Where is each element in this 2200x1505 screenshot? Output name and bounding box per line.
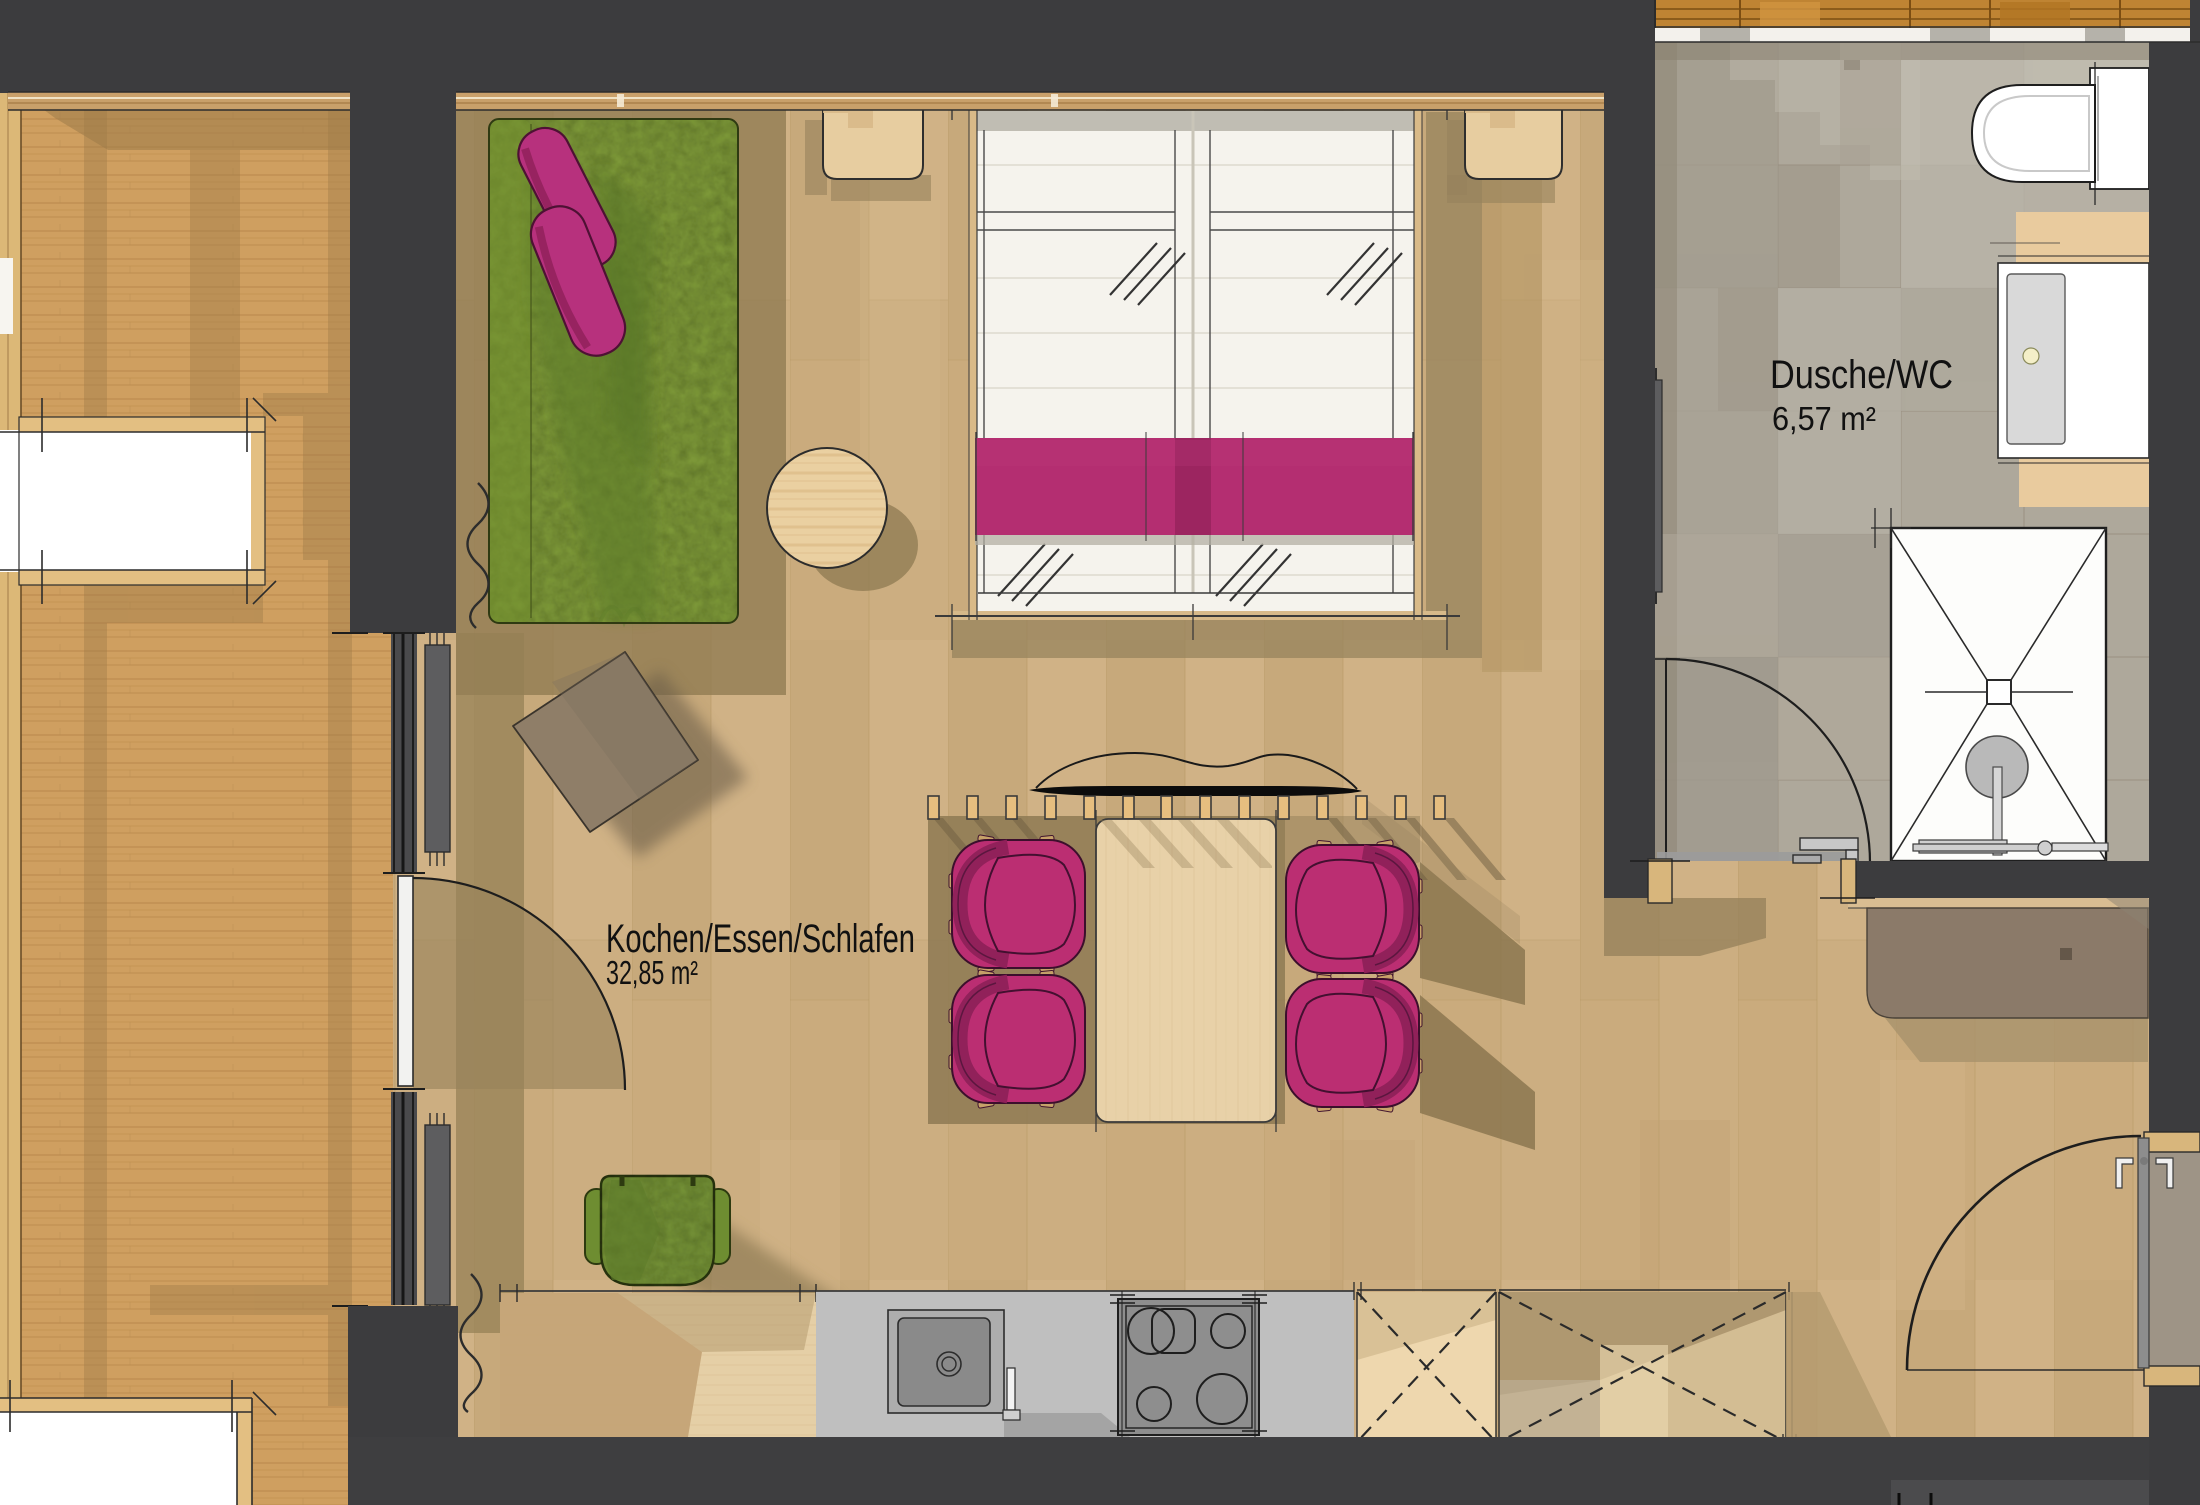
svg-text:Dusche/WC: Dusche/WC bbox=[1770, 353, 1953, 397]
svg-text:6,57 m²: 6,57 m² bbox=[1772, 400, 1876, 437]
svg-text:32,85 m²: 32,85 m² bbox=[606, 954, 698, 991]
